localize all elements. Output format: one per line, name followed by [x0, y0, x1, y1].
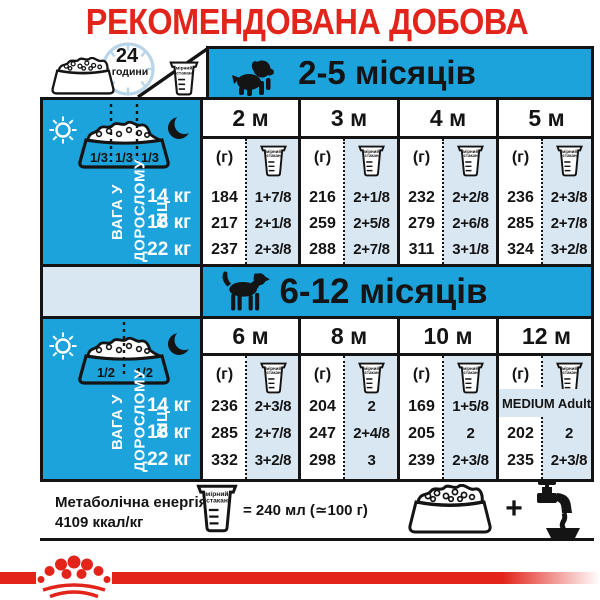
grams-value: 285	[499, 211, 542, 237]
cup-header: мірнийстакан	[346, 362, 397, 394]
month-header-8m: 8 м	[298, 319, 397, 356]
measuring-cup-icon: мірний стакан	[169, 61, 199, 96]
plus-sign: +	[501, 492, 527, 526]
cups-value: 1+5/8	[445, 393, 496, 420]
grams-value: 216	[301, 185, 344, 211]
cups-value: 2+1/8	[346, 185, 397, 211]
grams-value: 232	[400, 185, 443, 211]
grams-value: 237	[203, 237, 246, 263]
measuring-cup-icon: мірнийстакан	[556, 145, 583, 177]
weight-row-label: 18 кг	[121, 211, 191, 235]
cups-value: 2+3/8	[248, 237, 298, 263]
weight-row-label: 22 кг	[121, 448, 191, 472]
grams-value: 236	[499, 185, 542, 211]
cup-header: мірнийстакан	[445, 145, 496, 177]
grams-value: 285	[203, 420, 246, 447]
grams-unit: (г)	[203, 366, 246, 384]
kibble-pile	[88, 338, 160, 359]
month-header-10m: 10 м	[397, 319, 496, 356]
cups-value: 3+1/8	[445, 237, 496, 263]
svg-text:стакан: стакан	[364, 370, 379, 375]
feeding-guide: РЕКОМЕНДОВАНА ДОБОВА НОРМА 24 години мір…	[0, 0, 600, 600]
grams-unit: (г)	[301, 366, 344, 384]
grams-value: 298	[301, 447, 344, 474]
cups-value: 2+4/8	[346, 420, 397, 447]
svg-text:мірний: мірний	[205, 490, 228, 498]
grams-value: 259	[301, 211, 344, 237]
measuring-cup-icon: мірнийстакан	[358, 145, 385, 177]
cups-value: 2+1/8	[248, 211, 298, 237]
grams-unit: (г)	[400, 366, 443, 384]
table1-col-4m: (г) мірнийстакан 232 2+2/8 279 2+6/8 311…	[397, 139, 496, 264]
grams-value: 288	[301, 237, 344, 263]
cups-value: 2	[544, 420, 594, 447]
measuring-cup-icon: мірнийстакан	[457, 362, 484, 394]
grams-value: 279	[400, 211, 443, 237]
svg-text:стакан: стакан	[562, 153, 577, 158]
cup-header: мірнийстакан	[544, 145, 594, 177]
svg-text:стакан: стакан	[364, 153, 379, 158]
cup-header: мірнийстакан	[346, 145, 397, 177]
weight-row-label: 18 кг	[121, 421, 191, 445]
cups-value: 2	[346, 393, 397, 420]
cups-value: 2+3/8	[544, 185, 594, 211]
grams-value: 236	[203, 393, 246, 420]
moon-icon	[168, 330, 195, 355]
grams-value: 205	[400, 420, 443, 447]
table2-col-6m: (г) мірнийстакан 236 2+3/8 285 2+7/8 332…	[200, 356, 298, 479]
page-title: РЕКОМЕНДОВАНА ДОБОВА НОРМА	[58, 2, 557, 44]
measuring-cup-icon: мірнийстакан	[260, 145, 287, 177]
cups-value: 2+3/8	[445, 447, 496, 474]
water-faucet-icon	[526, 480, 582, 540]
cup-equivalence: = 240 мл (≃100 г)	[243, 501, 373, 521]
cups-value: 2+2/8	[445, 185, 496, 211]
sun-icon	[50, 333, 77, 360]
cups-value: 3	[346, 447, 397, 474]
grams-unit: (г)	[203, 149, 246, 167]
month-header-4m: 4 м	[397, 100, 496, 139]
grams-value: 235	[499, 447, 542, 474]
grams-unit: (г)	[499, 149, 542, 167]
kibble-pile	[88, 122, 160, 143]
grams-value: 332	[203, 447, 246, 474]
svg-text:стакан: стакан	[463, 370, 478, 375]
cups-value: 2+7/8	[248, 420, 298, 447]
svg-text:стакан: стакан	[206, 498, 228, 505]
brand-stripe-right	[112, 572, 600, 584]
measuring-cup-icon: мірнийстакан	[260, 362, 287, 394]
svg-text:стакан: стакан	[463, 153, 478, 158]
age-header-2-5-months: 2-5 місяців	[206, 46, 594, 100]
food-bowl-icon	[44, 57, 122, 98]
svg-text:стакан: стакан	[562, 370, 577, 375]
month-header-2m: 2 м	[200, 100, 298, 139]
adult-weight-panel-2: 1/2 1/2 ВАГА У ДОРОСЛОМУ ВІЦІ 14 кг 18 к…	[43, 319, 200, 479]
cups-value: 1+7/8	[248, 185, 298, 211]
cups-value: 3+2/8	[544, 237, 594, 263]
brand-stripe-left	[0, 572, 36, 584]
cups-value: 2	[445, 420, 496, 447]
adult-dog-icon	[217, 270, 271, 316]
grams-value: 324	[499, 237, 542, 263]
cups-value: 2+7/8	[346, 237, 397, 263]
medium-adult-cell: MEDIUM Adult	[499, 389, 594, 417]
table1-col-5m: (г) мірнийстакан 236 2+3/8 285 2+7/8 324…	[496, 139, 594, 264]
table1-col-3m: (г) мірнийстакан 216 2+1/8 259 2+5/8 288…	[298, 139, 397, 264]
table2-col-12m: (г) мірнийстакан MEDIUM Adult 202 2 235 …	[496, 356, 594, 479]
cups-value: 2+6/8	[445, 211, 496, 237]
cups-value: 2+3/8	[248, 393, 298, 420]
table1-col-2m: (г) мірнийстакан 184 1+7/8 217 2+1/8 237…	[200, 139, 298, 264]
adult-weight-panel-1: 1/3 1/3 1/3 ВАГА У ДОРОСЛОМУ ВІЦІ 14 кг …	[43, 100, 200, 264]
cups-value: 2+5/8	[346, 211, 397, 237]
month-header-6m: 6 м	[200, 319, 298, 356]
measuring-cup-icon: мірнийстакан	[358, 362, 385, 394]
cups-value: 2+3/8	[544, 447, 594, 474]
grams-unit: (г)	[499, 366, 542, 384]
grams-value: 247	[301, 420, 344, 447]
panel-gap-cell	[43, 264, 200, 319]
grams-value: 311	[400, 237, 443, 263]
sun-icon	[50, 117, 77, 144]
grams-unit: (г)	[301, 149, 344, 167]
month-header-12m: 12 м	[496, 319, 594, 356]
food-bowl-icon	[398, 484, 502, 538]
weight-row-label: 22 кг	[121, 238, 191, 262]
crown-logo	[36, 554, 112, 600]
month-header-3m: 3 м	[298, 100, 397, 139]
grams-value: 217	[203, 211, 246, 237]
grams-value: 202	[499, 420, 542, 447]
puppy-icon	[231, 57, 275, 97]
grams-value: 169	[400, 393, 443, 420]
cup-header: мірнийстакан	[248, 362, 298, 394]
cup-header: мірнийстакан	[445, 362, 496, 394]
table2-col-10m: (г) мірнийстакан 169 1+5/8 205 2 239 2+3…	[397, 356, 496, 479]
svg-text:стакан: стакан	[266, 153, 281, 158]
measuring-cup-icon: мірний стакан	[196, 484, 238, 533]
grams-unit: (г)	[400, 149, 443, 167]
grams-value: 239	[400, 447, 443, 474]
month-header-5m: 5 м	[496, 100, 594, 139]
measuring-cup-icon: мірнийстакан	[457, 145, 484, 177]
cups-value: 2+7/8	[544, 211, 594, 237]
moon-icon	[168, 114, 195, 139]
age-header-6-12-months: 6-12 місяців	[200, 264, 594, 319]
footer-divider	[40, 538, 594, 541]
grams-value: 204	[301, 393, 344, 420]
table2-col-8m: (г) мірнийстакан 204 2 247 2+4/8 298 3	[298, 356, 397, 479]
cup-label-2: стакан	[176, 71, 192, 76]
weight-row-label: 14 кг	[121, 394, 191, 418]
cup-header: мірнийстакан	[248, 145, 298, 177]
weight-row-label: 14 кг	[121, 185, 191, 209]
grams-value: 184	[203, 185, 246, 211]
svg-text:стакан: стакан	[266, 370, 281, 375]
cups-value: 3+2/8	[248, 447, 298, 474]
